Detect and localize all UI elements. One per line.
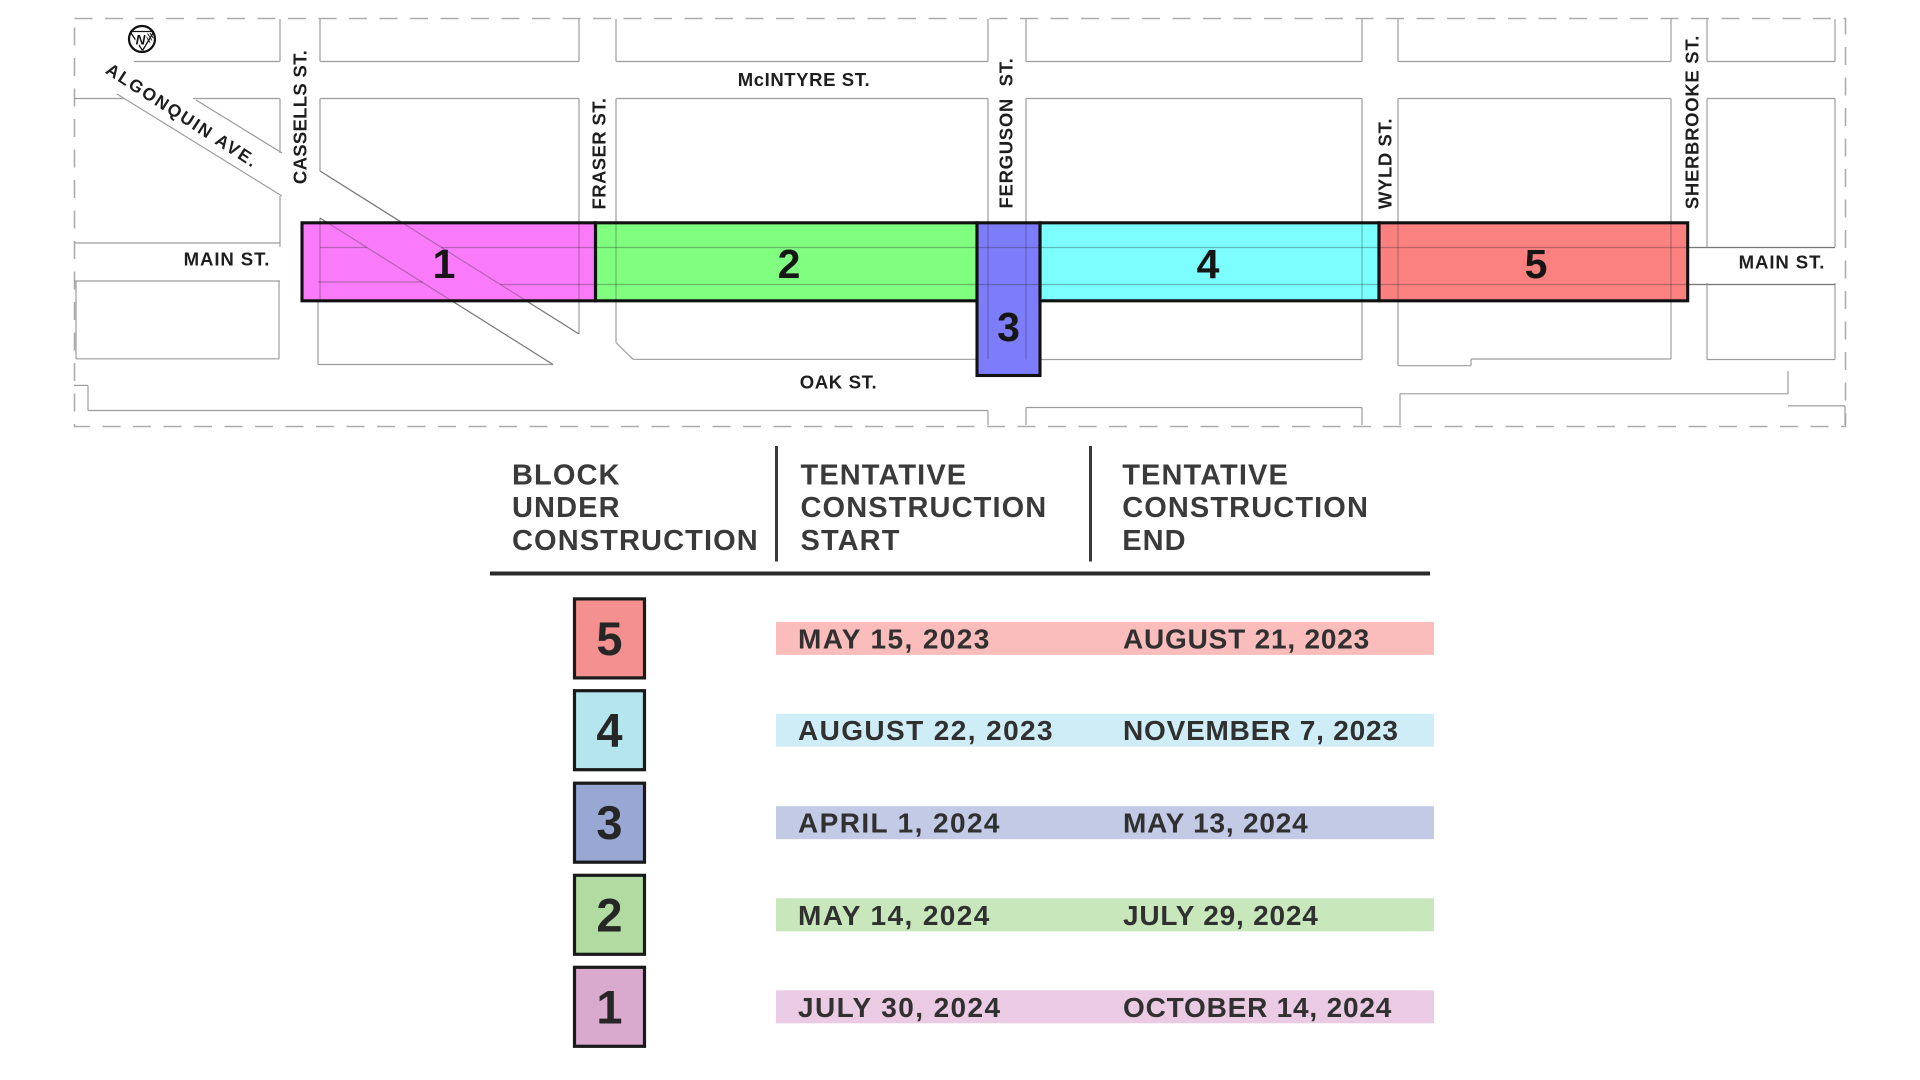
svg-text:APRIL 1, 2024: APRIL 1, 2024 — [798, 808, 1001, 839]
svg-text:1: 1 — [433, 241, 456, 287]
svg-text:4: 4 — [1197, 241, 1220, 287]
svg-text:MAIN ST.: MAIN ST. — [184, 249, 271, 270]
svg-text:SHERBROOKE ST.: SHERBROOKE ST. — [1682, 35, 1703, 209]
svg-text:AUGUST 21, 2023: AUGUST 21, 2023 — [1123, 623, 1370, 654]
svg-text:1: 1 — [596, 980, 622, 1033]
svg-text:3: 3 — [596, 796, 622, 849]
svg-text:3: 3 — [997, 304, 1020, 350]
svg-text:McINTYRE ST.: McINTYRE ST. — [738, 69, 871, 90]
svg-text:N: N — [136, 33, 146, 48]
svg-text:JULY 29, 2024: JULY 29, 2024 — [1123, 900, 1319, 931]
svg-text:MAY 13, 2024: MAY 13, 2024 — [1123, 808, 1309, 839]
svg-text:WYLD ST.: WYLD ST. — [1375, 118, 1396, 209]
svg-text:CASSELLS ST.: CASSELLS ST. — [290, 50, 311, 184]
svg-text:MAIN ST.: MAIN ST. — [1739, 252, 1826, 273]
svg-text:NOVEMBER 7, 2023: NOVEMBER 7, 2023 — [1123, 715, 1399, 746]
svg-text:JULY 30, 2024: JULY 30, 2024 — [798, 992, 1001, 1023]
svg-text:MAY 15, 2023: MAY 15, 2023 — [798, 623, 991, 654]
svg-text:FERGUSON ST.: FERGUSON ST. — [996, 58, 1017, 209]
svg-text:2: 2 — [596, 888, 622, 941]
svg-text:2: 2 — [778, 241, 801, 287]
svg-text:OAK ST.: OAK ST. — [800, 372, 878, 393]
svg-text:OCTOBER 14, 2024: OCTOBER 14, 2024 — [1123, 992, 1392, 1023]
svg-text:AUGUST 22, 2023: AUGUST 22, 2023 — [798, 715, 1054, 746]
svg-text:FRASER ST.: FRASER ST. — [589, 98, 610, 210]
svg-text:5: 5 — [1525, 241, 1548, 287]
svg-text:5: 5 — [596, 612, 622, 665]
svg-text:MAY 14, 2024: MAY 14, 2024 — [798, 900, 991, 931]
svg-text:4: 4 — [596, 704, 622, 757]
